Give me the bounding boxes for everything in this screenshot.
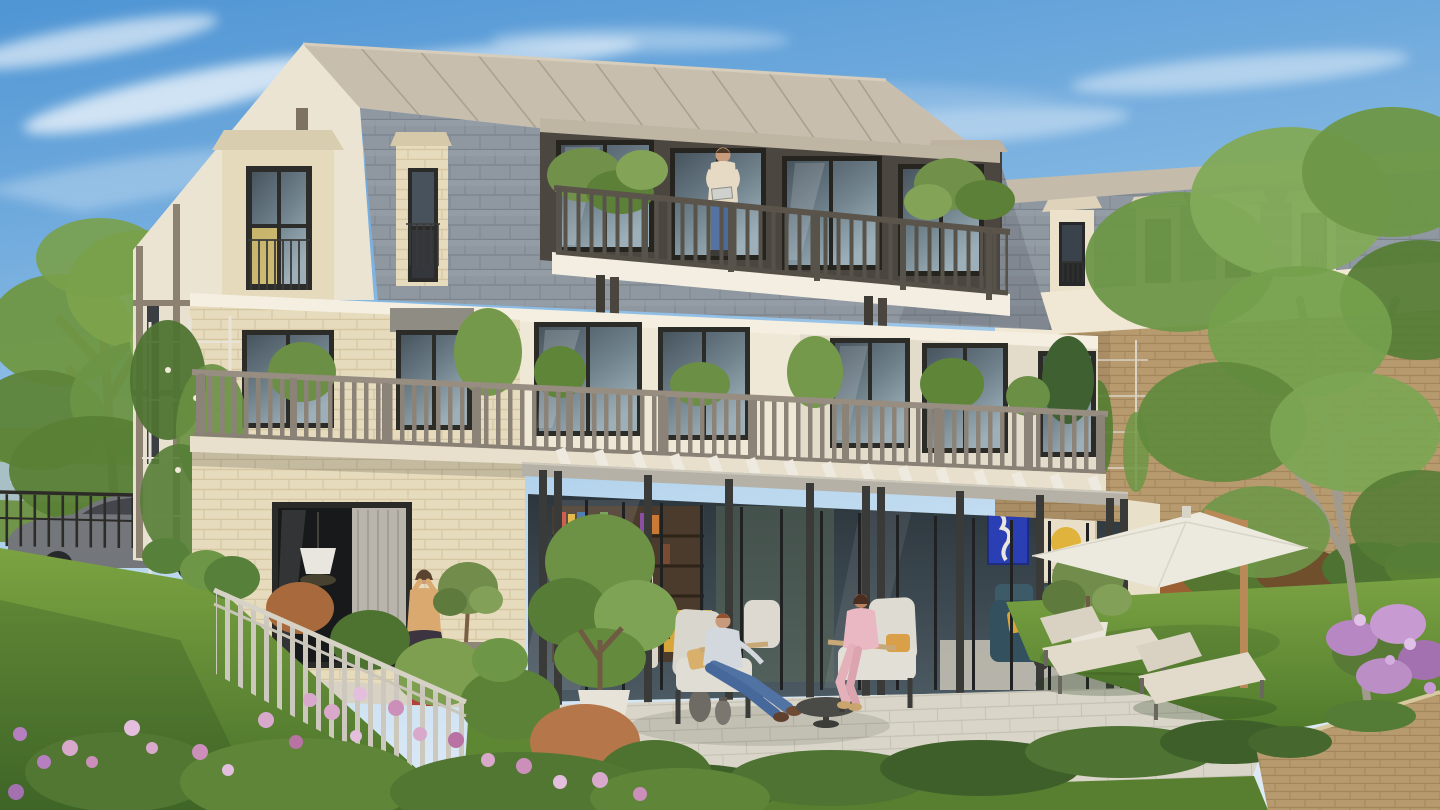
pendant-lamp [300, 548, 336, 574]
wall-greens [1324, 700, 1416, 732]
tablet [712, 187, 733, 200]
dormer-large [212, 130, 344, 302]
warm-interior [252, 226, 277, 284]
white-armchair [744, 600, 780, 648]
architectural-rendering: MATISSE [0, 0, 1440, 810]
wall-greens [1248, 726, 1332, 758]
canopy-cap [1182, 506, 1191, 518]
timber-rail [133, 300, 193, 306]
dormer-small [390, 132, 452, 286]
